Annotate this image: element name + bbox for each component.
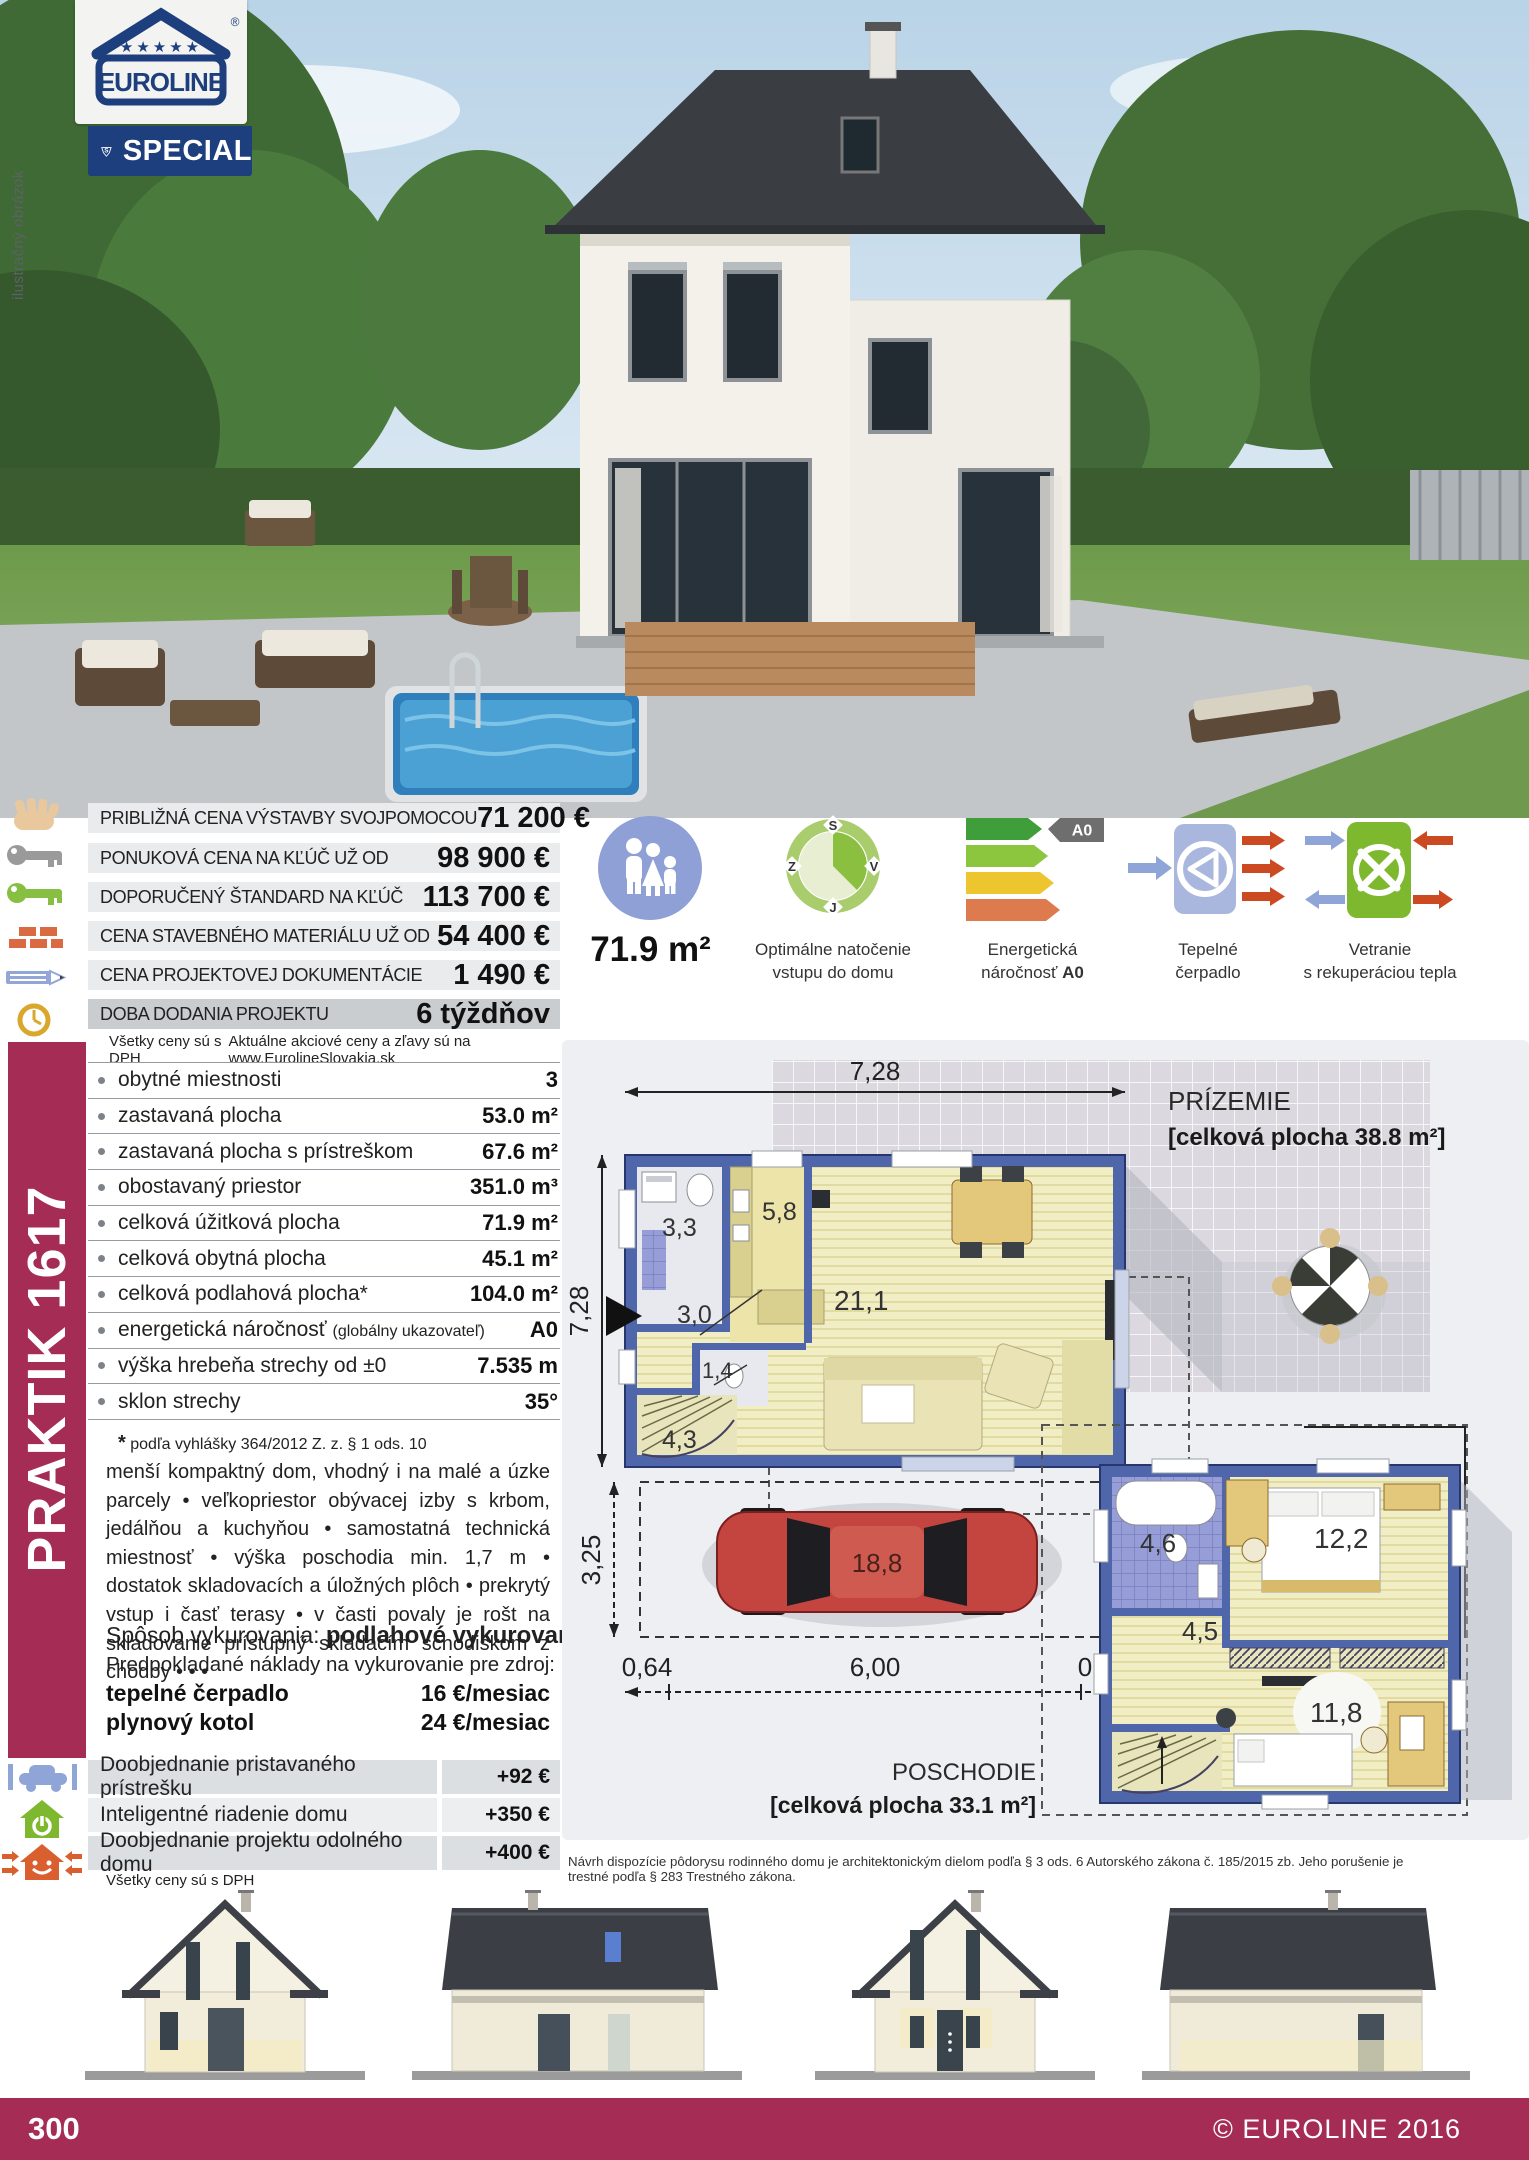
model-name: PRAKTIK 1617 <box>16 1185 78 1572</box>
copyright-legal-note: Návrh dispozície pôdorysu rodinného domu… <box>568 1854 1428 1884</box>
price-value: 113 700 € <box>423 881 550 914</box>
model-name-strip: PRAKTIK 1617 <box>8 1042 86 1758</box>
clock-icon <box>20 1006 48 1034</box>
floorplans-drawing: 18,8 3,3 5,8 3,0 21,1 1,4 4,3 <box>562 1040 1529 1840</box>
energy-a0-badge: A0 <box>1048 818 1104 842</box>
compass-north: S <box>829 818 838 833</box>
price-label: CENA PROJEKTOVEJ DOKUMENTÁCIE <box>100 965 422 986</box>
heat-pump-icon <box>1128 818 1288 922</box>
price-row-turnkey: PONUKOVÁ CENA NA KĽÚČ UŽ OD 98 900 € <box>88 843 560 873</box>
special-badge: S SPECIAL <box>88 126 252 176</box>
heat-pump-label: Tepelné čerpadlo <box>1138 938 1278 984</box>
elevation-side-right <box>1142 1890 1470 2080</box>
options-vat-note: Všetky ceny sú s DPH <box>106 1872 254 1889</box>
copyright-text: © EUROLINE 2016 <box>1213 2114 1461 2145</box>
spec-row-energy: energetická náročnosť (globálny ukazovat… <box>88 1313 560 1349</box>
catalog-page: ilustračný obrázok ® ★★★★★ EUROLINE S SP… <box>0 0 1529 2160</box>
family-area-icon <box>596 814 704 922</box>
heating-source-gas: plynový kotol 24 €/mesiac <box>106 1709 550 1736</box>
fence <box>1410 470 1529 560</box>
price-value: 1 490 € <box>453 959 550 992</box>
price-row-delivery-time: DOBA DODANIA PROJEKTU 6 týždňov <box>88 999 560 1029</box>
resilient-house-icon <box>2 1844 82 1880</box>
room-label-kitchen: 5,8 <box>762 1198 797 1226</box>
spec-row-ridge-height: výška hrebeňa strechy od ±0 7.535 m <box>88 1349 560 1385</box>
wardrobe <box>1230 1648 1330 1668</box>
price-label: CENA STAVEBNÉHO MATERIÁLU UŽ OD <box>100 926 430 947</box>
shield-letter: S <box>104 148 109 155</box>
price-icons-column <box>4 798 70 1040</box>
ventilation-recuperation-icon <box>1303 818 1455 922</box>
compass-west: Z <box>788 859 796 874</box>
page-number: 300 <box>28 2111 80 2147</box>
spec-row-rooms: obytné miestnosti 3 <box>88 1063 560 1099</box>
elevation-rear <box>815 1890 1095 2080</box>
dim-carport: 3,25 <box>576 1535 606 1586</box>
price-value: 6 týždňov <box>416 998 550 1031</box>
room-label-stairs: 4,3 <box>662 1426 697 1454</box>
room-label-bathroom: 3,3 <box>662 1214 697 1242</box>
option-row-shelter: Doobjednanie pristavaného prístrešku +92… <box>88 1760 560 1794</box>
page-footer: 300 © EUROLINE 2016 <box>0 2098 1529 2160</box>
orientation-label: Optimálne natočenie vstupu do domu <box>748 938 918 984</box>
price-row-self-build: PRIBLIŽNÁ CENA VÝSTAVBY SVOJPOMOCOU 71 2… <box>88 803 560 833</box>
room-label-wc: 1,4 <box>702 1358 733 1383</box>
spec-row-living-area: celková obytná plocha 45.1 m² <box>88 1241 560 1277</box>
spec-row-usable-area: celková úžitková plocha 71.9 m² <box>88 1206 560 1242</box>
heating-costs-intro: Predpokladané náklady na vykurovanie pre… <box>106 1653 555 1677</box>
bricks-icon <box>8 926 64 949</box>
room-label-living: 21,1 <box>834 1285 889 1316</box>
compass-east: V <box>870 859 879 874</box>
price-value: 54 400 € <box>437 920 550 953</box>
heating-source-heat-pump: tepelné čerpadlo 16 €/mesiac <box>106 1680 550 1707</box>
hero-photo: ilustračný obrázok ® ★★★★★ EUROLINE S SP… <box>0 0 1529 818</box>
option-row-smart-home: Inteligentné riadenie domu +350 € <box>88 1798 560 1832</box>
dim-left: 7,28 <box>564 1286 594 1337</box>
dim-bottom-left: 0,64 <box>622 1652 673 1682</box>
euroline-logo-graphic: ® ★★★★★ EUROLINE <box>75 0 247 124</box>
car: 18,8 <box>702 1503 1062 1627</box>
spec-row-built-area: zastavaná plocha 53.0 m² <box>88 1099 560 1135</box>
ground-floor-title: PRÍZEMIE <box>1168 1086 1291 1116</box>
heating-method: Spôsob vykurovania: podlahové vykurovani… <box>106 1622 593 1650</box>
energy-label: Energetická náročnosť A0 <box>950 938 1115 984</box>
smart-home-icon <box>20 1800 64 1838</box>
usable-area-value: 71.9 m² <box>568 930 733 970</box>
pencil-icon <box>6 971 64 984</box>
ventilation-label: Vetranie s rekuperáciou tepla <box>1290 938 1470 984</box>
elevation-drawings <box>60 1890 1470 2090</box>
compass-south: J <box>829 900 836 915</box>
wardrobe <box>1340 1648 1444 1668</box>
price-label: PRIBLIŽNÁ CENA VÝSTAVBY SVOJPOMOCOU <box>100 808 477 829</box>
option-icons-column <box>2 1758 82 1882</box>
carport-icon <box>8 1764 77 1792</box>
special-label: SPECIAL <box>123 135 252 168</box>
price-label: PONUKOVÁ CENA NA KĽÚČ UŽ OD <box>100 848 388 869</box>
hand-icon <box>14 798 60 830</box>
spec-table: obytné miestnosti 3 zastavaná plocha 53.… <box>88 1062 560 1420</box>
price-row-standard: DOPORUČENÝ ŠTANDARD NA KĽÚČ 113 700 € <box>88 882 560 912</box>
price-value: 98 900 € <box>437 842 550 875</box>
room-label-upper-bathroom: 4,6 <box>1140 1528 1176 1558</box>
energy-label-icon: A0 <box>966 818 1106 928</box>
price-value: 71 200 € <box>477 802 590 835</box>
chimney <box>870 28 896 78</box>
upper-floor-area: [celková plocha 33.1 m²] <box>770 1792 1036 1818</box>
dim-top: 7,28 <box>850 1056 901 1086</box>
key-green-icon <box>7 883 62 905</box>
dining-table <box>952 1166 1032 1258</box>
spec-row-built-area-shelter: zastavaná plocha s prístreškom 67.6 m² <box>88 1134 560 1170</box>
roof-window <box>842 118 878 172</box>
price-row-materials: CENA STAVEBNÉHO MATERIÁLU UŽ OD 54 400 € <box>88 921 560 951</box>
euroline-logo: ® ★★★★★ EUROLINE <box>75 0 247 124</box>
room-label-bedroom: 12,2 <box>1314 1523 1369 1554</box>
watermark-text: ilustračný obrázok <box>10 170 27 300</box>
special-shield-icon: S <box>100 131 113 171</box>
upper-floor-title: POSCHODIE <box>892 1759 1036 1786</box>
room-label-upper-hall: 4,5 <box>1182 1616 1218 1646</box>
compass-orientation-icon: S V J Z <box>783 814 883 922</box>
elevation-side-left <box>412 1890 742 2080</box>
upper-stairs <box>1112 1732 1222 1793</box>
spec-row-roof-pitch: sklon strechy 35° <box>88 1384 560 1420</box>
logo-brand-text: EUROLINE <box>98 67 225 97</box>
room-label-kids-room: 11,8 <box>1310 1697 1362 1728</box>
dim-bottom-mid: 6,00 <box>850 1652 901 1682</box>
room-label-hall: 3,0 <box>677 1301 712 1329</box>
fireplace <box>812 1190 830 1208</box>
spec-row-floor-area: celková podlahová plocha* 104.0 m² <box>88 1277 560 1313</box>
key-gray-icon <box>7 845 62 867</box>
spec-footnote: * podľa vyhlášky 364/2012 Z. z. § 1 ods.… <box>118 1432 427 1455</box>
spec-row-volume: obostavaný priestor 351.0 m³ <box>88 1170 560 1206</box>
carport-area-label: 18,8 <box>852 1548 903 1578</box>
price-label: DOPORUČENÝ ŠTANDARD NA KĽÚČ <box>100 887 403 908</box>
ground-floor-area: [celková plocha 38.8 m²] <box>1168 1124 1445 1151</box>
price-row-documentation: CENA PROJEKTOVEJ DOKUMENTÁCIE 1 490 € <box>88 960 560 990</box>
svg-text:A0: A0 <box>1072 823 1093 840</box>
floorplan-panel: 18,8 3,3 5,8 3,0 21,1 1,4 4,3 <box>562 1040 1529 1840</box>
registered-mark: ® <box>231 15 240 29</box>
option-row-resilient: Doobjednanie projektu odolného domu +400… <box>88 1836 560 1870</box>
logo-stars: ★★★★★ <box>120 39 202 56</box>
price-label: DOBA DODANIA PROJEKTU <box>100 1004 329 1025</box>
elevation-front <box>85 1890 365 2080</box>
